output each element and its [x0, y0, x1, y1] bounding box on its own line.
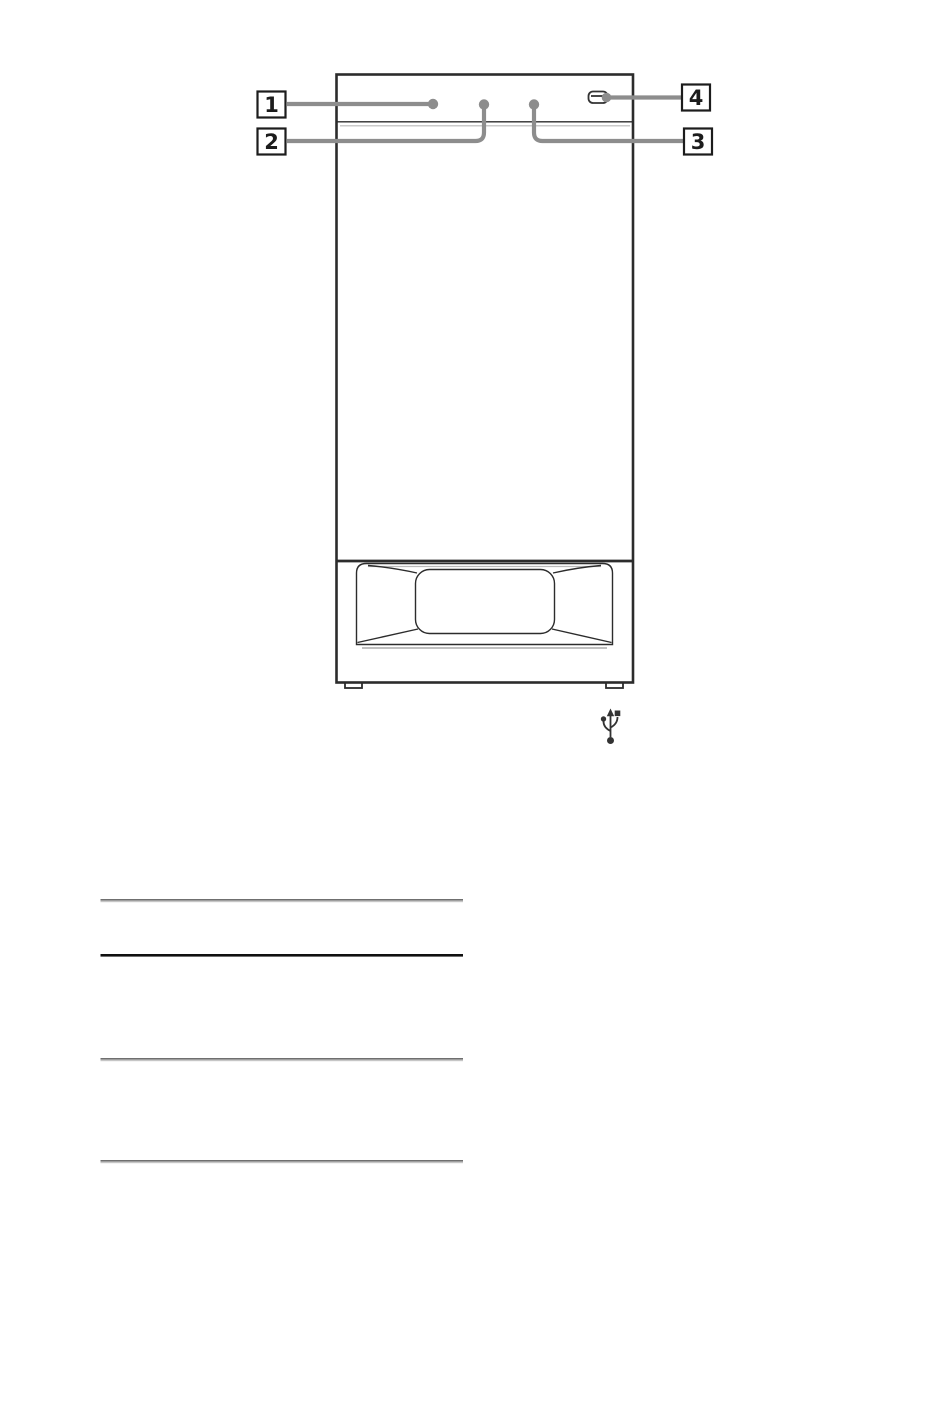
- usb-trident-icon: [601, 709, 621, 745]
- callout-4-dot: [602, 93, 612, 103]
- callout-3-dot: [529, 99, 539, 109]
- callout-3-leader: [534, 105, 684, 141]
- usb-trident-left-branch: [604, 722, 611, 732]
- usb-trident-base-node: [607, 737, 614, 744]
- section-rule-3: [101, 1058, 464, 1061]
- section-rule-4: [101, 1160, 464, 1163]
- speaker-cabinet: [337, 75, 634, 689]
- section-rule-4-light: [101, 1162, 464, 1164]
- device-callout-diagram: 1 2 3 4: [0, 0, 950, 1404]
- duct-diagonal-bottom-left: [358, 629, 419, 643]
- callout-1-label: 1: [264, 93, 279, 117]
- usb-trident-right-node: [615, 711, 621, 717]
- callout-2-dot: [479, 99, 489, 109]
- section-rule-1-dark: [101, 899, 464, 901]
- opening-outline: [357, 564, 613, 645]
- duct-inner-rect: [416, 570, 555, 634]
- usb-trident-right-branch: [611, 717, 618, 728]
- duct-diagonal-bottom-right: [552, 629, 612, 643]
- callout-3-label: 3: [691, 130, 706, 154]
- section-rule-1-light: [101, 901, 464, 903]
- right-foot: [606, 683, 623, 689]
- section-rule-4-dark: [101, 1160, 464, 1162]
- left-foot: [345, 683, 362, 689]
- usb-trident-left-node: [601, 716, 606, 721]
- callout-1: 1: [258, 92, 439, 118]
- callout-2: 2: [258, 99, 490, 154]
- callout-4-label: 4: [689, 86, 704, 110]
- callout-2-label: 2: [264, 130, 279, 154]
- section-rule-3-light: [101, 1060, 464, 1062]
- section-rule-1: [101, 899, 464, 902]
- manual-page: 1 2 3 4: [0, 0, 950, 1404]
- bass-reflex-opening: [357, 564, 613, 649]
- section-rule-2: [101, 954, 464, 957]
- callout-4: 4: [602, 85, 710, 111]
- callout-1-dot: [428, 99, 438, 109]
- callout-2-leader: [287, 105, 484, 141]
- cabinet-outline: [337, 75, 634, 683]
- section-rule-2-line: [101, 954, 464, 957]
- usb-trident-arrow: [607, 709, 614, 717]
- section-rule-3-dark: [101, 1058, 464, 1060]
